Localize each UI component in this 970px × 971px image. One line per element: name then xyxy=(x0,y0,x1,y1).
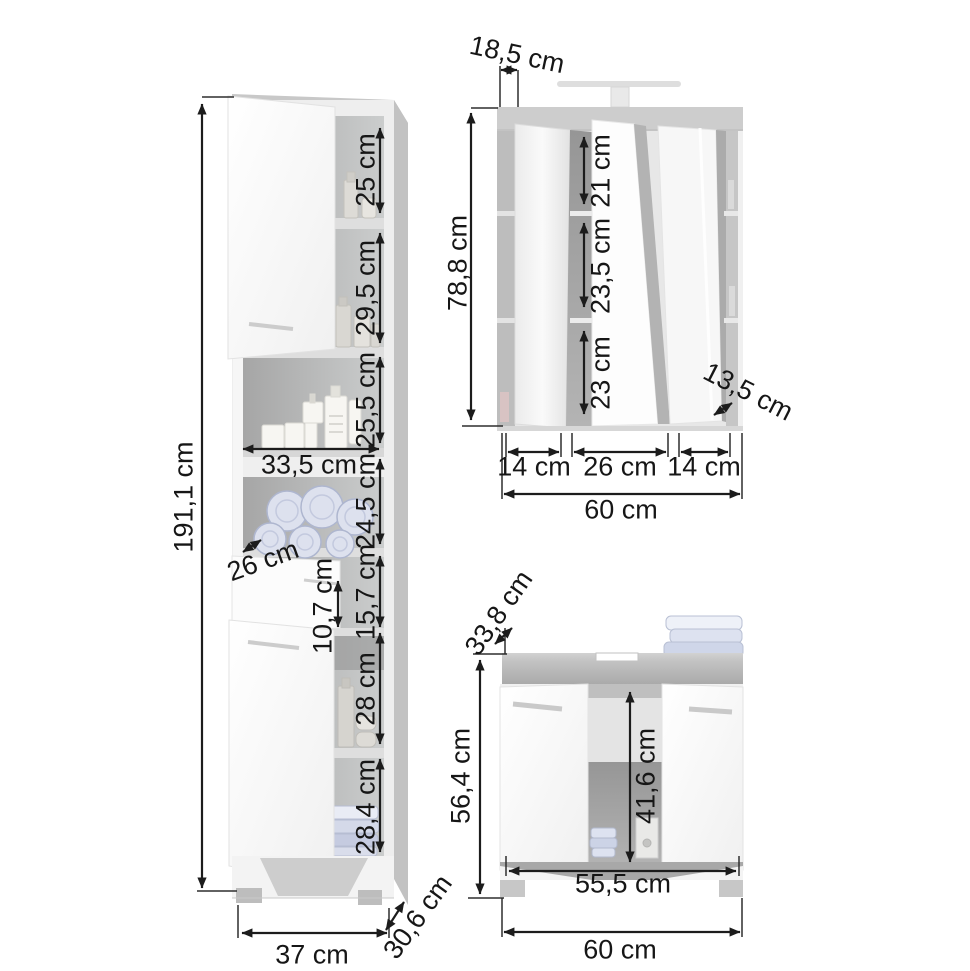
tall-shelf-width-label: 33,5 cm xyxy=(261,452,357,479)
mirror-width-label: 60 cm xyxy=(584,497,658,524)
mirror-door-center-label: 26 cm xyxy=(583,454,657,481)
light-fixture-mount xyxy=(611,87,629,107)
tall-cabinet-right-side xyxy=(394,100,408,905)
tall-cabinet-plinth xyxy=(232,856,394,905)
tall-section5-label: 28 cm xyxy=(353,652,380,726)
diagram-svg xyxy=(0,0,970,971)
mirror-door-left xyxy=(515,124,570,428)
furniture-dimension-diagram: 191,1 cm 25 cm 29,5 cm 25,5 cm 33,5 cm 2… xyxy=(0,0,970,971)
tall-cabinet-left-wall-edge xyxy=(233,358,243,556)
tall-drawer-inner-label: 10,7 cm xyxy=(310,558,337,654)
tall-drawer-section-label: 15,7 cm xyxy=(353,544,380,640)
vanity-width-label: 60 cm xyxy=(583,937,657,964)
mirror-comp3-label: 23 cm xyxy=(588,336,615,410)
tall-cabinet-upper-door xyxy=(228,96,335,359)
vanity-cabinet-drawing xyxy=(500,616,743,897)
vanity-towel-stack xyxy=(664,616,743,657)
tall-section6-label: 28,4 cm xyxy=(353,759,380,855)
tall-section1-label: 25 cm xyxy=(353,133,380,207)
interior-item-pink xyxy=(500,392,509,422)
mirror-door-right-label: 14 cm xyxy=(667,454,741,481)
vanity-plumbing-notch xyxy=(596,653,638,661)
light-fixture-bar xyxy=(557,81,681,87)
tall-cabinet-lower-door xyxy=(229,620,334,884)
tall-total-height-label: 191,1 cm xyxy=(171,441,198,552)
mirror-door-left-label: 14 cm xyxy=(497,454,571,481)
tall-section2-label: 29,5 cm xyxy=(353,240,380,336)
mirror-height-label: 78,8 cm xyxy=(445,215,472,311)
vanity-height-label: 56,4 cm xyxy=(448,728,475,824)
tall-section3-label: 25,5 cm xyxy=(353,352,380,448)
vanity-right-handle xyxy=(689,709,732,712)
tall-width-label: 37 cm xyxy=(275,942,349,969)
vanity-door-left xyxy=(500,684,588,870)
tall-section4-label: 24,5 cm xyxy=(353,453,380,549)
vanity-inner-height-label: 41,6 cm xyxy=(633,728,660,824)
vanity-inner-width-label: 55,5 cm xyxy=(575,871,671,898)
mirror-comp1-label: 21 cm xyxy=(588,134,615,208)
mirror-comp2-label: 23,5 cm xyxy=(588,218,615,314)
